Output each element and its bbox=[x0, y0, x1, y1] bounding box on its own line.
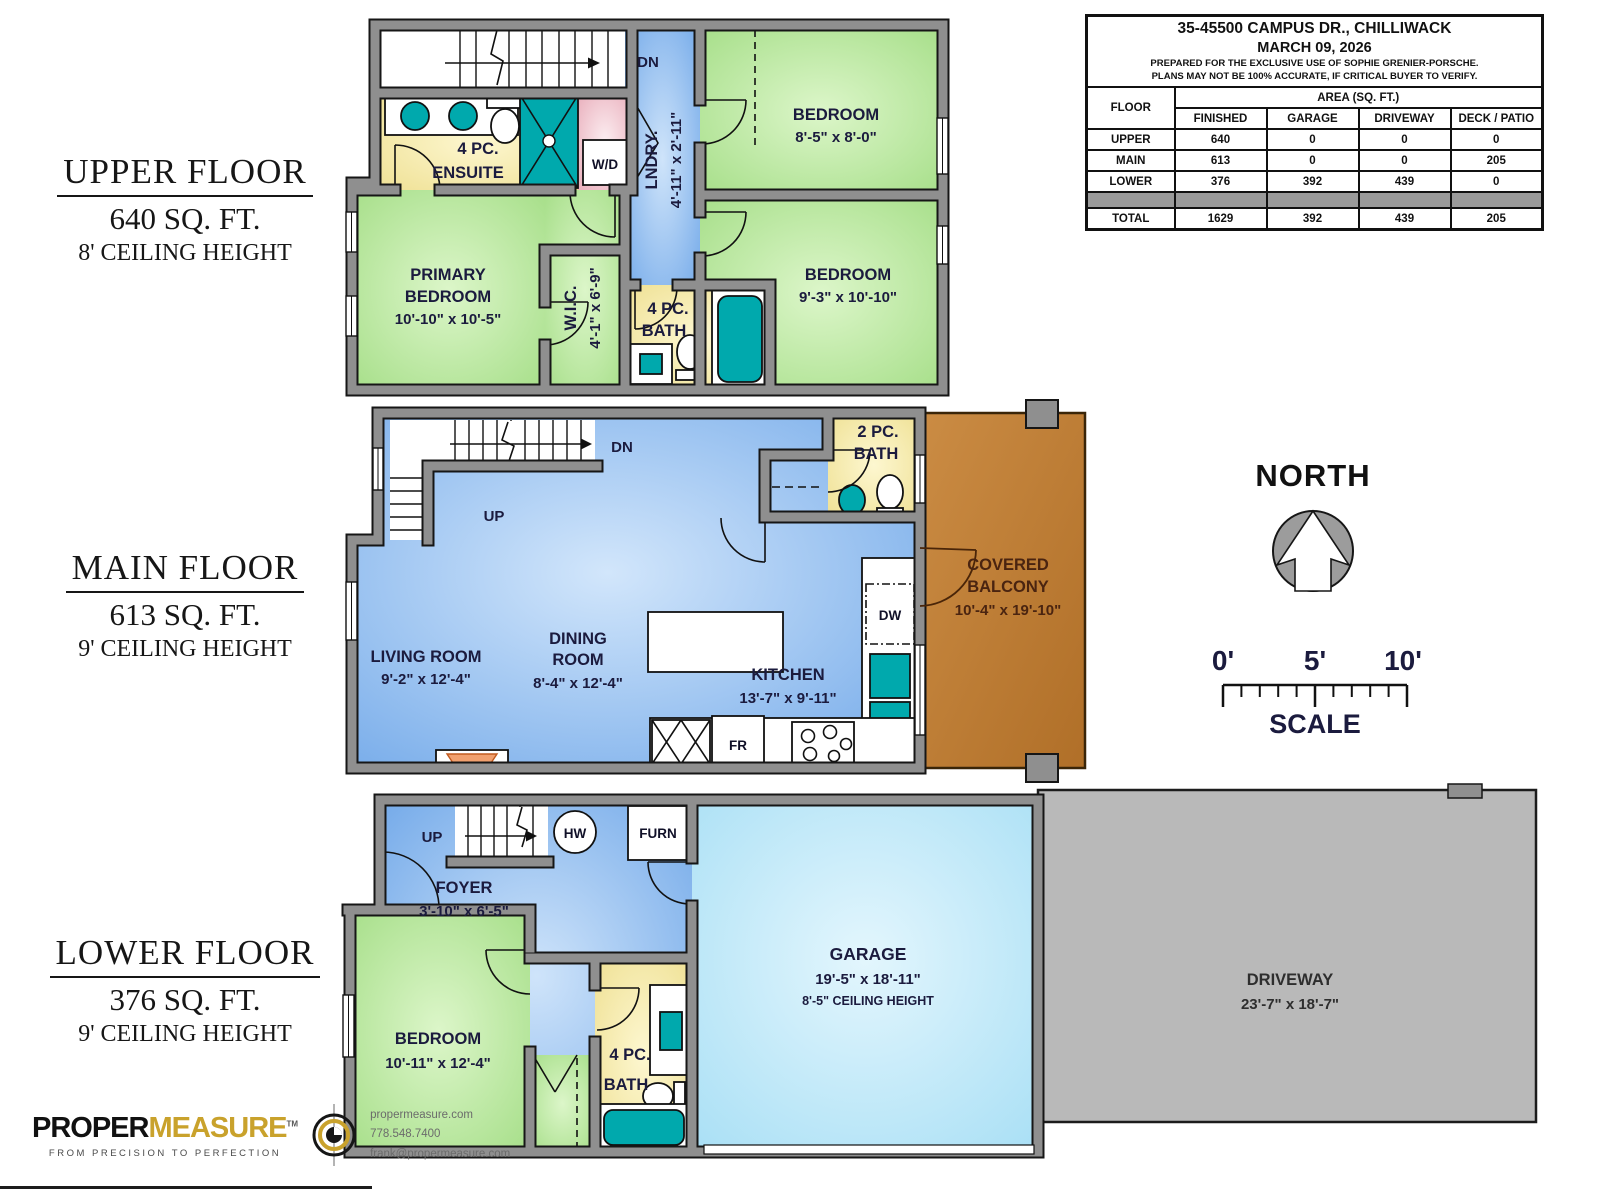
cell: 0 bbox=[1359, 129, 1451, 150]
brand-wordmark: PROPERMEASURETM bbox=[32, 1112, 298, 1145]
col-header-driveway: DRIVEWAY bbox=[1359, 108, 1451, 129]
stairs-up-label: UP bbox=[484, 508, 505, 525]
toilet-icon bbox=[491, 109, 519, 143]
sink-icon bbox=[640, 354, 662, 374]
powder-label-1: 2 PC. bbox=[857, 423, 898, 441]
cell: UPPER bbox=[1087, 129, 1175, 150]
foyer-dims: 3'-10" x 6'-5" bbox=[419, 903, 509, 920]
table-row: LOWER3763924390 bbox=[1087, 171, 1543, 192]
balcony-dims: 10'-4" x 19'-10" bbox=[955, 602, 1061, 619]
cell: 0 bbox=[1267, 129, 1359, 150]
bath-label-2: BATH bbox=[642, 322, 687, 340]
brand-tagline: FROM PRECISION TO PERFECTION bbox=[32, 1148, 298, 1159]
primary-dims: 10'-10" x 10'-5" bbox=[395, 311, 501, 328]
table-blank-row bbox=[1087, 192, 1543, 208]
upper-floor-name: UPPER FLOOR bbox=[57, 152, 312, 197]
hot-water-label: HW bbox=[564, 826, 587, 841]
dishwasher-label: DW bbox=[879, 608, 902, 623]
garage-door bbox=[704, 1145, 1034, 1154]
cell: LOWER bbox=[1087, 171, 1175, 192]
bedroom-dims: 10'-11" x 12'-4" bbox=[385, 1055, 491, 1072]
brand-measure: MEASURE bbox=[148, 1112, 286, 1144]
lower-floor-area: 376 SQ. FT. bbox=[30, 982, 340, 1018]
lower-floor-ceiling: 9' CEILING HEIGHT bbox=[30, 1021, 340, 1048]
living-dims: 9'-2" x 12'-4" bbox=[381, 671, 471, 688]
scale-10: 10' bbox=[1384, 645, 1422, 676]
main-floor-plan: DN UP 2 PC. BATH LIVING ROOM 9'-2" x 12'… bbox=[340, 398, 1100, 790]
living-label: LIVING ROOM bbox=[371, 648, 482, 666]
bath-label-1: 4 PC. bbox=[609, 1046, 650, 1064]
driveway-dims: 23'-7" x 18'-7" bbox=[1241, 996, 1339, 1013]
ensuite-label-2: ENSUITE bbox=[432, 164, 504, 182]
kitchen-label: KITCHEN bbox=[751, 666, 824, 684]
col-header-garage: GARAGE bbox=[1267, 108, 1359, 129]
wic-label: W.I.C. bbox=[562, 286, 580, 331]
website: propermeasure.com bbox=[370, 1106, 510, 1126]
cell: 205 bbox=[1451, 208, 1543, 230]
laundry-label: LNDRY. bbox=[643, 131, 661, 190]
dining-dims: 8'-4" x 12'-4" bbox=[533, 675, 623, 692]
cell: 0 bbox=[1451, 171, 1543, 192]
upper-floor-area: 640 SQ. FT. bbox=[30, 201, 340, 237]
lower-windows bbox=[343, 995, 354, 1057]
bedroom-label: BEDROOM bbox=[395, 1030, 481, 1048]
lower-floor-title: LOWER FLOOR 376 SQ. FT. 9' CEILING HEIGH… bbox=[30, 933, 340, 1048]
accuracy-note: PLANS MAY NOT BE 100% ACCURATE, IF CRITI… bbox=[1090, 71, 1539, 82]
sink-icon bbox=[660, 1012, 682, 1050]
plan-date: MARCH 09, 2026 bbox=[1090, 40, 1539, 56]
property-address: 35-45500 CAMPUS DR., CHILLIWACK bbox=[1090, 20, 1539, 38]
cell: 0 bbox=[1267, 150, 1359, 171]
stairs-dn-label: DN bbox=[637, 54, 659, 71]
col-header-deck: DECK / PATIO bbox=[1451, 108, 1543, 129]
cell: 376 bbox=[1175, 171, 1267, 192]
garage-dims: 19'-5" x 18'-11" bbox=[815, 971, 921, 988]
floorplan-sheet: UPPER FLOOR 640 SQ. FT. 8' CEILING HEIGH… bbox=[0, 0, 1600, 1200]
propermeasure-logo-block: PROPERMEASURETM FROM PRECISION TO PERFEC… bbox=[32, 1104, 510, 1166]
kitchen-island bbox=[648, 612, 783, 672]
cell: TOTAL bbox=[1087, 208, 1175, 230]
cell: 392 bbox=[1267, 171, 1359, 192]
scale-0: 0' bbox=[1212, 645, 1234, 676]
cell: 205 bbox=[1451, 150, 1543, 171]
foyer-label: FOYER bbox=[436, 879, 493, 897]
brand-tm: TM bbox=[287, 1119, 299, 1128]
sink-icon bbox=[870, 654, 910, 698]
furnace-label: FURN bbox=[639, 826, 677, 841]
table-row: UPPER640000 bbox=[1087, 129, 1543, 150]
upper-floor-plan: DN LNDRY. 4'-11" x 2'-11" BEDROOM 8'-5" … bbox=[340, 15, 960, 400]
balcony-post bbox=[1026, 400, 1058, 428]
sink-icon bbox=[401, 102, 429, 130]
stairs-dn-label: DN bbox=[611, 439, 633, 456]
table-total-row: TOTAL1629392439205 bbox=[1087, 208, 1543, 230]
cell: 439 bbox=[1359, 208, 1451, 230]
cell: MAIN bbox=[1087, 150, 1175, 171]
scale-5: 5' bbox=[1304, 645, 1326, 676]
toilet-icon bbox=[877, 475, 903, 509]
cell: 0 bbox=[1451, 129, 1543, 150]
kitchen-dims: 13'-7" x 9'-11" bbox=[739, 690, 836, 707]
sink-icon bbox=[449, 102, 477, 130]
upper-floor-ceiling: 8' CEILING HEIGHT bbox=[30, 240, 340, 267]
garage-label: GARAGE bbox=[830, 944, 907, 964]
bottom-divider bbox=[0, 1186, 372, 1189]
bathtub-icon bbox=[718, 296, 762, 382]
driveway-label: DRIVEWAY bbox=[1247, 971, 1334, 989]
fridge-label: FR bbox=[729, 738, 747, 753]
main-floor-title: MAIN FLOOR 613 SQ. FT. 9' CEILING HEIGHT bbox=[30, 548, 340, 663]
cell: 392 bbox=[1267, 208, 1359, 230]
email: frank@propermeasure.com bbox=[370, 1145, 510, 1165]
col-header-floor: FLOOR bbox=[1087, 87, 1175, 129]
brand-proper: PROPER bbox=[32, 1112, 148, 1144]
table-title-cell: 35-45500 CAMPUS DR., CHILLIWACK MARCH 09… bbox=[1087, 16, 1543, 88]
cell: 640 bbox=[1175, 129, 1267, 150]
area-summary-table: 35-45500 CAMPUS DR., CHILLIWACK MARCH 09… bbox=[1085, 14, 1544, 231]
lower-floor-name: LOWER FLOOR bbox=[50, 933, 321, 978]
wic-dims: 4'-1" x 6'-9" bbox=[587, 267, 604, 348]
bedroom1-label: BEDROOM bbox=[793, 106, 879, 124]
driveway bbox=[1038, 790, 1536, 1122]
balcony-label-1: COVERED bbox=[967, 556, 1049, 574]
ensuite-label-1: 4 PC. bbox=[457, 140, 498, 158]
col-header-finished: FINISHED bbox=[1175, 108, 1267, 129]
upper-floor-title: UPPER FLOOR 640 SQ. FT. 8' CEILING HEIGH… bbox=[30, 152, 340, 267]
powder-label-2: BATH bbox=[854, 445, 899, 463]
cell: 439 bbox=[1359, 171, 1451, 192]
balcony-post bbox=[1026, 754, 1058, 782]
phone: 778.548.7400 bbox=[370, 1125, 510, 1145]
post bbox=[1448, 784, 1482, 798]
bathtub-icon bbox=[604, 1110, 684, 1145]
garage-ceiling: 8'-5" CEILING HEIGHT bbox=[802, 994, 934, 1008]
target-logo-icon bbox=[308, 1104, 360, 1166]
bath-label-1: 4 PC. bbox=[647, 300, 688, 318]
pantry-icon bbox=[652, 720, 710, 764]
dining-label-2: ROOM bbox=[552, 651, 603, 669]
scale-bar: 0' 5' 10' SCALE bbox=[1195, 640, 1435, 740]
table-row: MAIN61300205 bbox=[1087, 150, 1543, 171]
washer-dryer-label: W/D bbox=[592, 157, 618, 172]
cell: 0 bbox=[1359, 150, 1451, 171]
prepared-note: PREPARED FOR THE EXCLUSIVE USE OF SOPHIE… bbox=[1090, 58, 1539, 69]
north-compass-icon bbox=[1265, 503, 1361, 599]
balcony-label-2: BALCONY bbox=[967, 578, 1049, 596]
main-floor-area: 613 SQ. FT. bbox=[30, 597, 340, 633]
main-floor-name: MAIN FLOOR bbox=[66, 548, 305, 593]
brand-text-block: PROPERMEASURETM FROM PRECISION TO PERFEC… bbox=[32, 1112, 298, 1159]
contact-block: propermeasure.com 778.548.7400 frank@pro… bbox=[370, 1106, 510, 1165]
bedroom2-dims: 9'-3" x 10'-10" bbox=[799, 289, 897, 306]
col-header-area: AREA (SQ. FT.) bbox=[1175, 87, 1543, 108]
north-label: NORTH bbox=[1243, 458, 1383, 494]
bath-label-2: BATH bbox=[604, 1076, 649, 1094]
scale-label: SCALE bbox=[1269, 709, 1361, 739]
stairs-up-label: UP bbox=[422, 829, 443, 846]
bedroom2-label: BEDROOM bbox=[805, 266, 891, 284]
stove-icon bbox=[792, 722, 854, 766]
dining-label-1: DINING bbox=[549, 630, 607, 648]
cell: 1629 bbox=[1175, 208, 1267, 230]
laundry-dims: 4'-11" x 2'-11" bbox=[668, 112, 685, 208]
primary-label-2: BEDROOM bbox=[405, 288, 491, 306]
main-floor-ceiling: 9' CEILING HEIGHT bbox=[30, 636, 340, 663]
lower-floor-plan: UP HW FURN FOYER 3'-10" x 6'-5" BEDROOM … bbox=[340, 780, 1540, 1170]
cell: 613 bbox=[1175, 150, 1267, 171]
primary-label-1: PRIMARY bbox=[410, 266, 485, 284]
bedroom1-dims: 8'-5" x 8'-0" bbox=[795, 129, 876, 146]
